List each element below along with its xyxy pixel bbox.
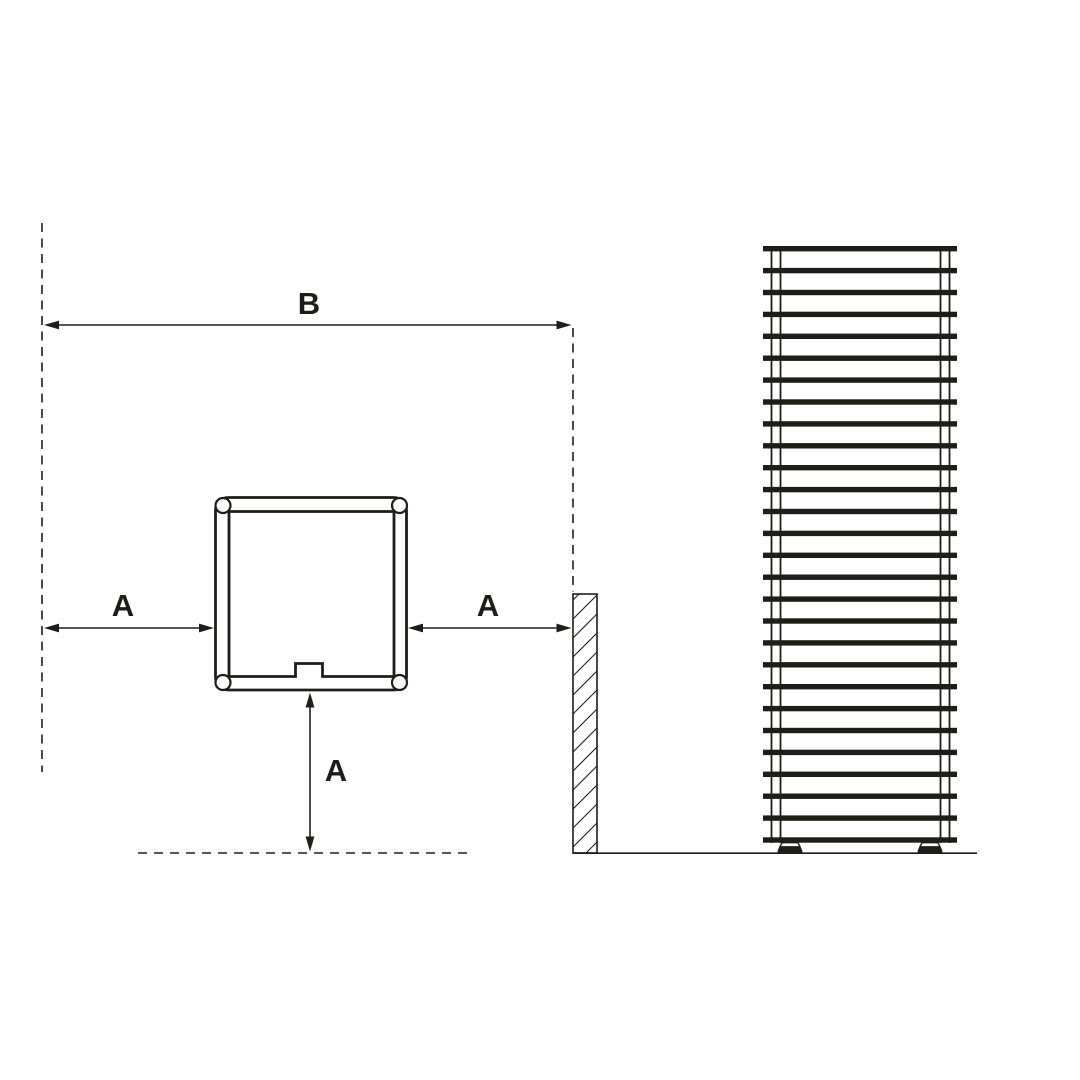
heater-top-view	[216, 498, 408, 691]
arrowhead-left-icon	[44, 624, 59, 633]
dim-a-bottom-label: A	[325, 753, 347, 788]
arrowhead-up-icon	[306, 693, 315, 708]
heater-slat	[763, 487, 957, 492]
heater-slat	[763, 794, 957, 799]
corner-tube-bottom-right	[392, 675, 407, 690]
corner-tube-top-right	[392, 498, 407, 513]
heater-slat	[763, 399, 957, 404]
heater-slat	[763, 684, 957, 689]
arrowhead-right-icon	[199, 624, 214, 633]
arrowhead-right-icon	[557, 624, 572, 633]
dimension-a-left: A	[44, 588, 214, 632]
installation-clearance-diagram: B A A A	[0, 0, 1080, 1080]
arrowhead-right-icon	[557, 321, 572, 330]
foot-base	[778, 847, 803, 853]
heater-foot-left	[778, 843, 803, 853]
heater-slat	[763, 334, 957, 339]
arrowhead-left-icon	[44, 321, 59, 330]
heater-slat	[763, 618, 957, 623]
foot-stem	[780, 843, 800, 847]
heater-slat	[763, 640, 957, 645]
heater-slat	[763, 356, 957, 361]
heater-slat	[763, 246, 957, 251]
heater-slat	[763, 728, 957, 733]
dimension-a-right: A	[408, 588, 572, 632]
heater-slat	[763, 531, 957, 536]
heater-slat	[763, 443, 957, 448]
heater-slats	[763, 246, 957, 843]
arrowhead-left-icon	[408, 624, 423, 633]
heater-side-view	[763, 246, 957, 853]
heater-foot-right	[918, 843, 943, 853]
heater-slat	[763, 706, 957, 711]
dimension-a-bottom: A	[306, 693, 348, 852]
heater-slat	[763, 553, 957, 558]
dim-a-right-label: A	[477, 588, 499, 623]
corner-tube-top-left	[216, 498, 231, 513]
arrowhead-down-icon	[306, 837, 315, 852]
heater-slat	[763, 815, 957, 820]
heater-slat	[763, 575, 957, 580]
dimension-b: B	[44, 286, 572, 329]
heater-slat	[763, 596, 957, 601]
dim-b-label: B	[298, 286, 320, 321]
corner-tube-bottom-left	[216, 675, 231, 690]
heater-slat	[763, 772, 957, 777]
dim-a-left-label: A	[112, 588, 134, 623]
heater-slat	[763, 268, 957, 273]
heater-outer-frame	[216, 498, 407, 691]
wall-outline	[573, 594, 597, 853]
heater-slat	[763, 509, 957, 514]
foot-stem	[920, 843, 940, 847]
wall-section	[573, 594, 597, 853]
heater-slat	[763, 377, 957, 382]
heater-slat	[763, 837, 957, 842]
heater-slat	[763, 662, 957, 667]
heater-slat	[763, 312, 957, 317]
heater-slat	[763, 421, 957, 426]
heater-slat	[763, 290, 957, 295]
heater-slat	[763, 750, 957, 755]
foot-base	[918, 847, 943, 853]
heater-slat	[763, 465, 957, 470]
diagram-canvas: B A A A	[0, 0, 1080, 1080]
